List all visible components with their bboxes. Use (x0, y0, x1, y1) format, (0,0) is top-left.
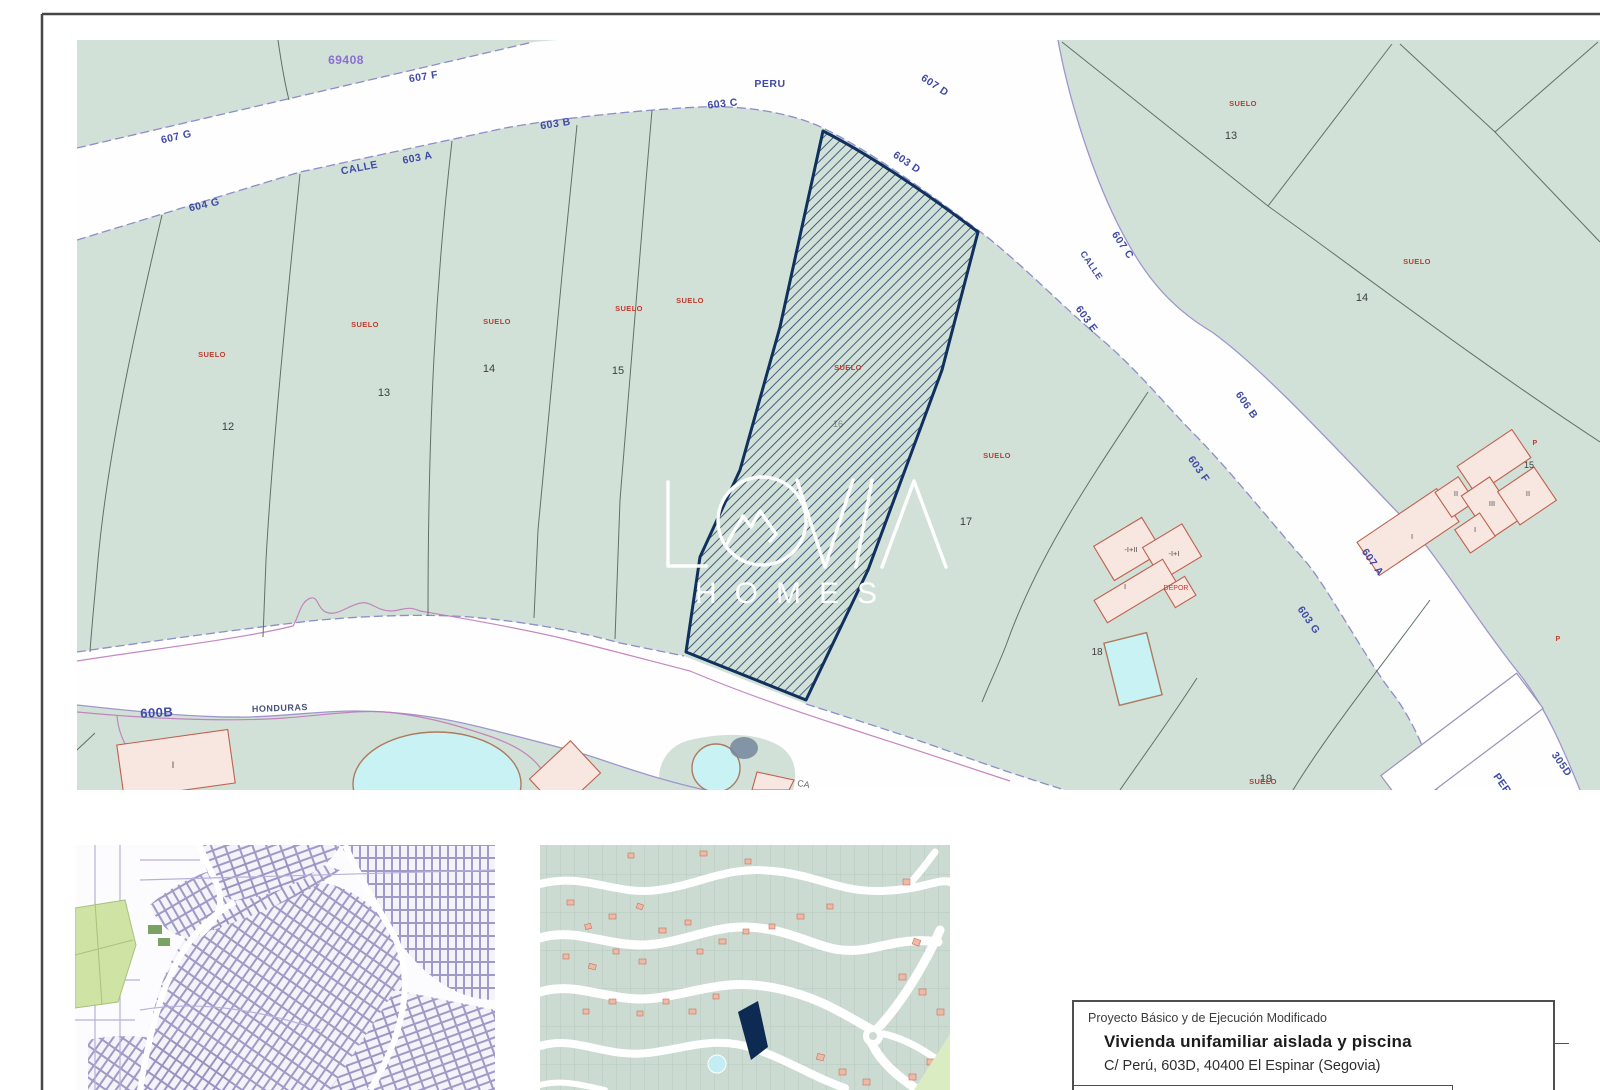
title-block-tick (1553, 1043, 1569, 1044)
suelo-label: SUELO (351, 320, 379, 329)
pool-structure (730, 737, 758, 759)
site-plan-canvas: 607 G604 GCALLE603 A607 F69408603 B603 C… (0, 0, 1600, 1090)
street-label: PERU (754, 78, 785, 90)
building-label: II (1454, 489, 1458, 498)
building-label: II (1526, 489, 1530, 498)
suelo-label: SUELO (483, 317, 511, 326)
building-label: DEPOR (1164, 585, 1189, 592)
suelo-label: SUELO (1229, 99, 1257, 108)
street-label: 600B (140, 704, 174, 721)
suelo-label: SUELO (615, 304, 643, 313)
title-block-divider (1452, 1085, 1453, 1090)
pool-oval (353, 732, 521, 836)
parcel-label: 17 (960, 516, 972, 528)
building-label: CA (796, 778, 810, 790)
overview-inset-cadastral (75, 845, 495, 1090)
suelo-label: SUELO (983, 451, 1011, 460)
building-label: I (1411, 532, 1413, 541)
parcel-label: 15 (1524, 460, 1534, 470)
inset-pool (708, 1055, 726, 1073)
parcel-label: 15 (612, 365, 624, 377)
parcel-label: 16 (833, 419, 843, 429)
suelo-label: SUELO (1249, 777, 1277, 786)
suelo-label: P (1532, 440, 1537, 447)
parcel-label: 12 (222, 421, 234, 433)
project-address: C/ Perú, 603D, 40400 El Espinar (Segovia… (1104, 1058, 1553, 1074)
building-label: III (1489, 499, 1495, 508)
building-label: I (1474, 525, 1476, 534)
suelo-label: P (1555, 636, 1560, 643)
building-label: -I+I (1168, 549, 1179, 558)
suelo-label: SUELO (1403, 257, 1431, 266)
parcel-label: 14 (1356, 292, 1368, 304)
site-plan-map: 607 G604 GCALLE603 A607 F69408603 B603 C… (77, 40, 1600, 836)
parcel-label: 13 (1225, 130, 1237, 142)
parcel-label: 18 (1091, 647, 1103, 658)
building-label: -I+II (1124, 545, 1137, 554)
title-block-divider (1074, 1085, 1452, 1086)
building-label: I (172, 760, 175, 770)
parcel-label: 14 (483, 363, 495, 375)
suelo-label: SUELO (834, 363, 862, 372)
project-type: Proyecto Básico y de Ejecución Modificad… (1088, 1011, 1553, 1025)
street-label: HONDURAS (252, 702, 308, 714)
suelo-label: SUELO (676, 296, 704, 305)
title-block: Proyecto Básico y de Ejecución Modificad… (1072, 1000, 1555, 1090)
parcel-label: 13 (378, 387, 390, 399)
plan-sheet: 607 G604 GCALLE603 A607 F69408603 B603 C… (0, 0, 1600, 1090)
watermark-word: HOMES (695, 577, 895, 610)
building-label: I (1124, 582, 1126, 591)
street-label: 69408 (328, 53, 364, 67)
suelo-label: SUELO (198, 350, 226, 359)
project-title: Vivienda unifamiliar aislada y piscina (1104, 1032, 1553, 1052)
overview-inset-location (540, 845, 950, 1090)
